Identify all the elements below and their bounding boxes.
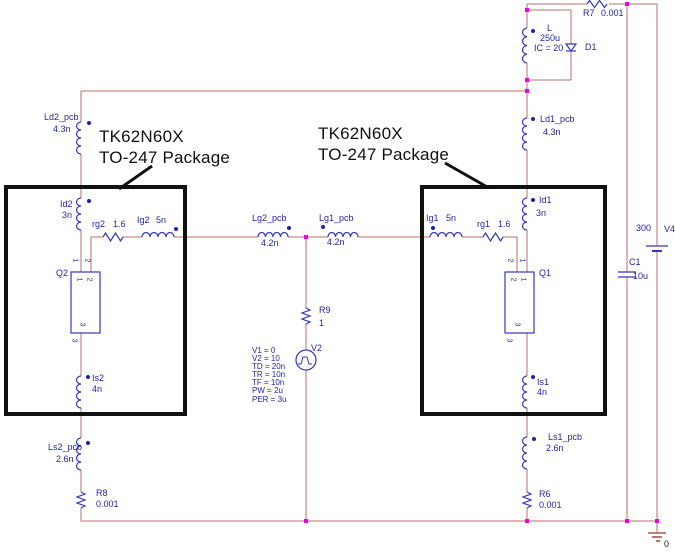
label-Id1-value[interactable]: 3n: [536, 209, 546, 219]
label-Is1-value[interactable]: 4n: [537, 388, 547, 398]
pin-number: 1: [519, 278, 526, 282]
pin-number: 3: [78, 323, 85, 327]
pin-number: 1: [71, 259, 78, 263]
pin-number: 2: [506, 259, 513, 263]
pin1-marker: [532, 437, 536, 441]
label-V2-params[interactable]: V1 = 0 V2 = 10 TD = 20n TR = 10n TF = 10…: [252, 347, 286, 404]
pin-number: 3: [70, 339, 77, 343]
junction-dot: [525, 519, 529, 523]
label-R6-ref[interactable]: R6: [539, 490, 551, 500]
label-R8-ref[interactable]: R8: [96, 489, 108, 499]
annotation-line: TO-247 Package: [99, 147, 230, 168]
label-Ls1_pcb-value[interactable]: 2.6n: [546, 444, 564, 454]
pin-number: 2: [509, 278, 516, 282]
label-Lg1_pcb-ref[interactable]: Lg1_pcb: [319, 214, 354, 224]
label-C1-value[interactable]: 10u: [633, 272, 648, 282]
label-Ls1_pcb-ref[interactable]: Ls1_pcb: [548, 433, 582, 443]
diode-D1-symbol[interactable]: [566, 44, 576, 51]
pin1-marker: [321, 225, 325, 229]
resistor-R9-symbol[interactable]: [302, 308, 310, 324]
label-Id2-value[interactable]: 3n: [62, 211, 72, 221]
label-Ig1-value[interactable]: 5n: [446, 214, 456, 224]
junction-dot: [625, 519, 629, 523]
label-rg2-ref[interactable]: rg2: [92, 220, 105, 230]
vdc-V4-symbol[interactable]: [646, 246, 668, 251]
label-V4-ref[interactable]: V4: [664, 225, 675, 235]
junction-dot: [625, 2, 629, 6]
resistor-R6-symbol[interactable]: [523, 492, 531, 508]
junction-dot: [304, 519, 308, 523]
inductor-Ls1_pcb-symbol[interactable]: [523, 437, 528, 469]
package-annotation-left: TK62N60X TO-247 Package: [99, 126, 230, 168]
label-Id2-ref[interactable]: Id2: [60, 200, 73, 210]
label-Q1-ref[interactable]: Q1: [539, 269, 551, 279]
pin-number: 3: [513, 323, 520, 327]
label-C1-ref[interactable]: C1: [629, 258, 641, 268]
label-Q2-ref[interactable]: Q2: [56, 269, 68, 279]
annotation-line: TO-247 Package: [318, 144, 449, 165]
label-R7-value[interactable]: 0.001: [601, 9, 624, 19]
inductor-Ld1_pcb-symbol[interactable]: [523, 118, 528, 150]
junction-dot: [304, 235, 308, 239]
label-Ld2_pcb-value[interactable]: 4.3n: [53, 125, 71, 135]
pin-number: 1: [518, 259, 525, 263]
label-Is2-value[interactable]: 4n: [92, 385, 102, 395]
label-R9-ref[interactable]: R9: [319, 306, 331, 316]
pin1-marker: [531, 29, 535, 33]
label-Ld1_pcb-value[interactable]: 4.3n: [543, 128, 561, 138]
label-Ls2_pcb-value[interactable]: 2.6n: [56, 455, 74, 465]
inductor-L-symbol[interactable]: [523, 28, 527, 63]
label-R9-value[interactable]: 1: [319, 319, 324, 329]
label-Ld2_pcb-ref[interactable]: Ld2_pcb: [44, 113, 79, 123]
label-Ld1_pcb-ref[interactable]: Ld1_pcb: [540, 115, 575, 125]
label-Is2-ref[interactable]: Is2: [92, 374, 104, 384]
resistor-R8-symbol[interactable]: [77, 492, 85, 508]
junction-dot: [525, 89, 529, 93]
schematic-canvas: TK62N60X TO-247 Package TK62N60X TO-247 …: [0, 0, 675, 555]
label-rg2-value[interactable]: 1.6: [113, 220, 126, 230]
pin-number: 3: [505, 339, 512, 343]
label-Lg1_pcb-value[interactable]: 4.2n: [327, 238, 345, 248]
label-V2-ref[interactable]: V2: [311, 344, 322, 354]
label-Lg2_pcb-value[interactable]: 4.2n: [261, 239, 279, 249]
pin-number: 1: [75, 278, 82, 282]
pin1-marker: [87, 121, 91, 125]
label-R7-ref[interactable]: R7: [583, 9, 595, 19]
pin1-marker: [531, 117, 535, 121]
junction-dot: [525, 78, 529, 82]
label-ground-0[interactable]: 0: [664, 539, 669, 549]
annotation-line: TK62N60X: [99, 126, 230, 147]
label-Ig2-value[interactable]: 5n: [156, 216, 166, 226]
label-V4-value[interactable]: 300: [636, 224, 651, 234]
label-R6-value[interactable]: 0.001: [539, 501, 562, 511]
label-D1-ref[interactable]: D1: [585, 43, 597, 53]
pin-number: 2: [85, 278, 92, 282]
inductor-Lg2_pcb-symbol[interactable]: [258, 233, 288, 238]
inductor-Ld2_pcb-symbol[interactable]: [77, 122, 82, 154]
pin1-marker: [287, 226, 291, 230]
label-Ls2_pcb-ref[interactable]: Ls2_pcb: [48, 443, 82, 453]
junction-dot: [655, 519, 659, 523]
label-L-ic[interactable]: IC = 20: [534, 44, 563, 54]
v2-param: PER = 3u: [252, 396, 286, 404]
annotation-line: TK62N60X: [318, 123, 449, 144]
pin1-marker: [86, 441, 90, 445]
label-rg1-ref[interactable]: rg1: [477, 220, 490, 230]
pin-number: 2: [83, 259, 90, 263]
label-Ig1-ref[interactable]: Ig1: [426, 214, 439, 224]
label-rg1-value[interactable]: 1.6: [498, 220, 511, 230]
resistor-R7-symbol[interactable]: [587, 1, 607, 8]
label-R8-value[interactable]: 0.001: [96, 500, 119, 510]
label-Ig2-ref[interactable]: Ig2: [137, 216, 150, 226]
label-Id1-ref[interactable]: Id1: [539, 196, 552, 206]
junction-dot: [525, 8, 529, 12]
package-annotation-right: TK62N60X TO-247 Package: [318, 123, 449, 165]
label-Lg2_pcb-ref[interactable]: Lg2_pcb: [252, 214, 287, 224]
